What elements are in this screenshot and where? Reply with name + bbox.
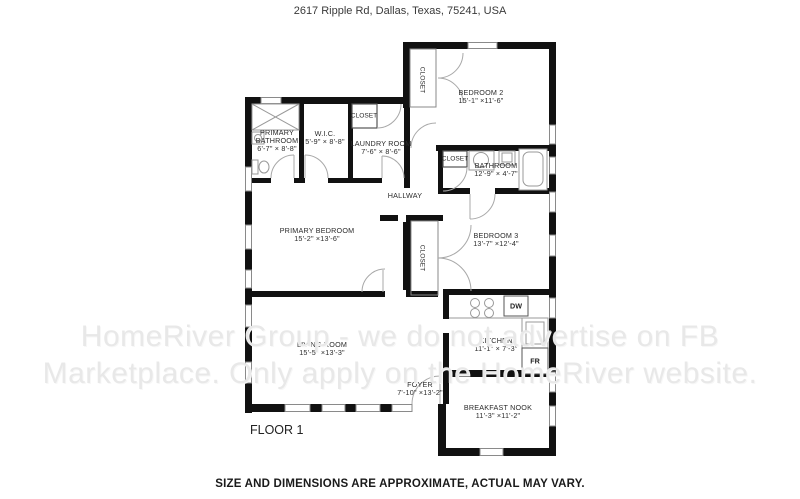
room-label-breakfast-nook: BREAKFAST NOOK 11'-3" ×11'-2" — [438, 404, 558, 420]
closet-label-bathroom: CLOSET — [442, 156, 468, 163]
room-label-bathroom: BATHROOM 12'-9" × 4'-7" — [436, 162, 556, 178]
room-label-bedroom-2: BEDROOM 2 15'-1" ×11'-6" — [421, 89, 541, 105]
dishwasher-label: DW — [510, 302, 522, 311]
closet-label-bedroom-3: CLOSET — [419, 245, 426, 271]
room-label-laundry-room: LAUNDRY ROOM 7'-6" × 8'-6" — [321, 140, 441, 156]
shower-fixture — [252, 104, 299, 130]
room-label-bedroom-3: BEDROOM 3 13'-7" ×12'-4" — [436, 232, 556, 248]
watermark-line-1: HomeRiver Group - we do not advertise on… — [0, 318, 800, 355]
floor-plan-page: 2617 Ripple Rd, Dallas, Texas, 75241, US… — [0, 0, 800, 499]
closet-label-laundry: CLOSET — [351, 113, 377, 120]
room-label-hallway: HALLWAY — [345, 192, 465, 200]
closet-label-bedroom-2: CLOSET — [419, 67, 426, 93]
toilet-fixture-primary — [252, 160, 269, 174]
floor-number-label: FLOOR 1 — [250, 423, 304, 437]
room-label-primary-bedroom: PRIMARY BEDROOM 15'-2" ×13'-6" — [257, 227, 377, 243]
watermark: HomeRiver Group - we do not advertise on… — [0, 318, 800, 392]
floor-plan-drawing — [0, 0, 800, 499]
watermark-line-2: Marketplace. Only apply on the HomeRiver… — [0, 355, 800, 392]
disclaimer-text: SIZE AND DIMENSIONS ARE APPROXIMATE, ACT… — [0, 478, 800, 490]
